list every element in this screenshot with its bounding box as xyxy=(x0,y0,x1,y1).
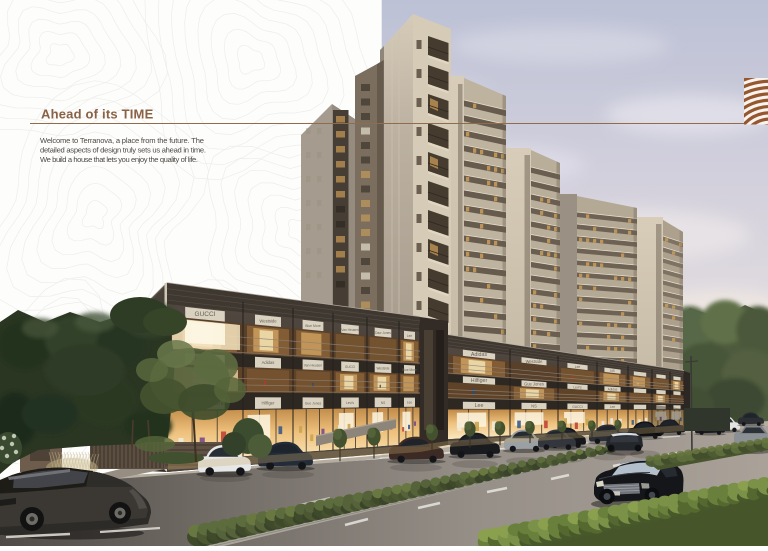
svg-text:Westside: Westside xyxy=(259,318,277,323)
svg-text:Van Heusen: Van Heusen xyxy=(341,328,359,332)
svg-text:Adidas: Adidas xyxy=(608,388,618,392)
svg-text:Van Heusen: Van Heusen xyxy=(304,363,323,367)
svg-text:GUCCI: GUCCI xyxy=(195,311,216,318)
svg-text:Blue More: Blue More xyxy=(305,324,321,328)
svg-text:Gue Jones: Gue Jones xyxy=(524,382,544,387)
svg-text:GUCCI: GUCCI xyxy=(572,405,583,409)
svg-text:Lee: Lee xyxy=(475,403,484,409)
svg-text:Lee: Lee xyxy=(407,334,413,338)
svg-text:Levi's: Levi's xyxy=(573,385,582,389)
svg-text:Westside: Westside xyxy=(376,367,389,371)
svg-text:Blue More: Blue More xyxy=(402,368,417,372)
svg-text:NS: NS xyxy=(610,369,614,373)
svg-text:Levi's: Levi's xyxy=(346,401,354,405)
svg-text:Lee: Lee xyxy=(575,365,581,369)
svg-text:NS: NS xyxy=(531,404,537,409)
svg-text:Gue Jones: Gue Jones xyxy=(305,401,322,405)
svg-text:Lee: Lee xyxy=(610,405,616,409)
svg-text:Ahead of its TIME: Ahead of its TIME xyxy=(41,107,154,122)
svg-text:Welcome to Terranova, a place: Welcome to Terranova, a place from the f… xyxy=(40,136,204,145)
svg-text:detailed aspects of design tru: detailed aspects of design truly sets us… xyxy=(40,146,206,155)
svg-text:Daw Jones: Daw Jones xyxy=(375,331,391,335)
svg-text:Adidas: Adidas xyxy=(471,352,488,358)
svg-text:GUCCI: GUCCI xyxy=(345,365,355,369)
svg-text:Hilfiger: Hilfiger xyxy=(471,378,488,384)
svg-text:Adidas: Adidas xyxy=(262,360,275,365)
svg-text:NS: NS xyxy=(381,401,385,405)
svg-text:Westside: Westside xyxy=(526,359,543,364)
svg-text:Lee: Lee xyxy=(407,401,413,405)
svg-text:We build a house that lets you: We build a house that lets you enjoy the… xyxy=(40,155,198,164)
svg-text:Hilfiger: Hilfiger xyxy=(261,401,275,406)
